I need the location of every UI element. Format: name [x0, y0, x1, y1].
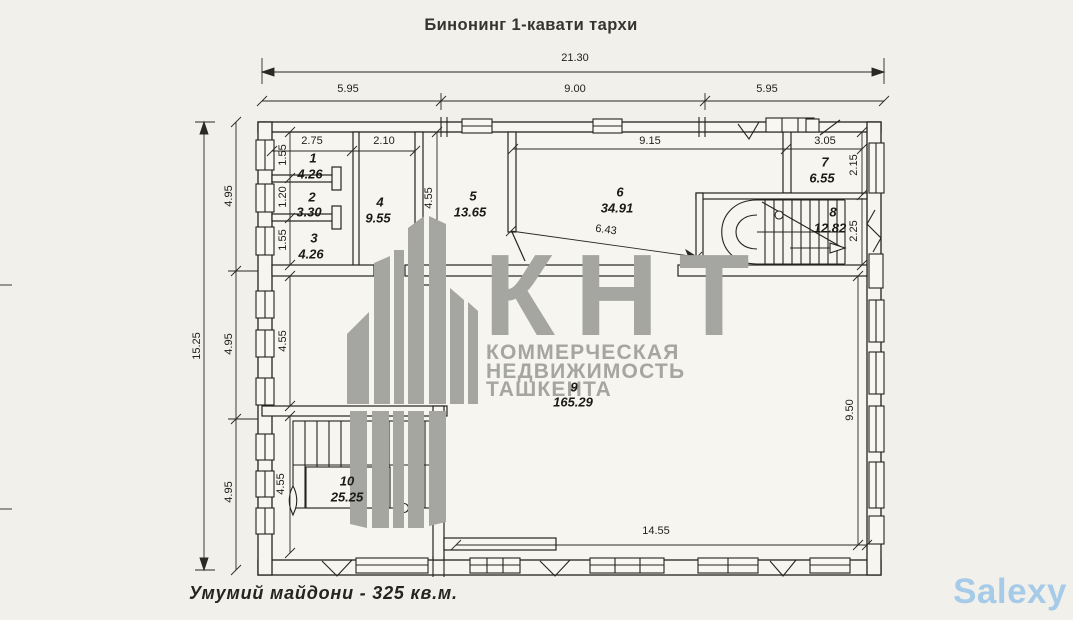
- room-2-number: 2: [308, 190, 315, 205]
- dim-stair-height: 4.55: [275, 473, 287, 494]
- dim-hall-bottom-width: 14.55: [642, 525, 670, 537]
- dim-left-seg-3: 4.95: [223, 481, 235, 502]
- dim-left-seg-2: 4.95: [223, 333, 235, 354]
- dim-room1-height: 1.55: [277, 144, 289, 165]
- room-1-number: 1: [309, 151, 316, 166]
- dim-left-seg-1: 4.95: [223, 185, 235, 206]
- dim-room4-width: 2.10: [373, 135, 394, 147]
- dim-room8-height: 2.25: [848, 220, 860, 241]
- room-8-area: 12.82: [814, 221, 847, 236]
- dim-top-seg-1: 5.95: [337, 83, 358, 95]
- room-10-number: 10: [340, 474, 354, 489]
- dim-room6-width: 9.15: [639, 135, 660, 147]
- dim-hall-right-height: 9.50: [844, 399, 856, 420]
- dim-room5-height: 4.55: [423, 187, 435, 208]
- watermark-tagline-3: ТАШКЕНТА: [486, 378, 612, 402]
- room-7-area: 6.55: [809, 171, 834, 186]
- room-4-area: 9.55: [365, 211, 390, 226]
- room-7-number: 7: [821, 155, 828, 170]
- dim-room7-height: 2.15: [848, 154, 860, 175]
- room-9-number: 9: [570, 380, 577, 395]
- page-title: Бинонинг 1-кавати тархи: [424, 16, 637, 35]
- room-3-area: 4.26: [298, 247, 323, 262]
- dim-rooms123-width: 2.75: [301, 135, 322, 147]
- room-9-area: 165.29: [553, 395, 593, 410]
- room-5-number: 5: [469, 189, 476, 204]
- dim-overall-width: 21.30: [561, 52, 589, 64]
- floorplan-page: КНТ КОММЕРЧЕСКАЯ НЕДВИЖИМОСТЬ ТАШКЕНТА Б…: [0, 0, 1073, 620]
- room-8-number: 8: [829, 205, 836, 220]
- room-6-area: 34.91: [601, 201, 634, 216]
- watermark-logo-text: КНТ: [484, 237, 769, 353]
- room-2-area: 3.30: [296, 205, 321, 220]
- room-4-number: 4: [376, 195, 383, 210]
- room-10-area: 25.25: [331, 490, 364, 505]
- brand-watermark: Salexy: [953, 572, 1067, 612]
- room-1-area: 4.26: [297, 167, 322, 182]
- dim-top-seg-2: 9.00: [564, 83, 585, 95]
- dim-overall-height: 15.25: [191, 332, 203, 360]
- room-6-number: 6: [616, 185, 623, 200]
- room-5-area: 13.65: [454, 205, 487, 220]
- dim-room2-height: 1.20: [277, 186, 289, 207]
- dim-top-seg-3: 5.95: [756, 83, 777, 95]
- dim-hall-left-height: 4.55: [277, 330, 289, 351]
- room-3-number: 3: [310, 231, 317, 246]
- dim-room7-width: 3.05: [814, 135, 835, 147]
- total-area-text: Умумий майдони - 325 кв.м.: [189, 583, 458, 604]
- dim-room3-height: 1.55: [277, 229, 289, 250]
